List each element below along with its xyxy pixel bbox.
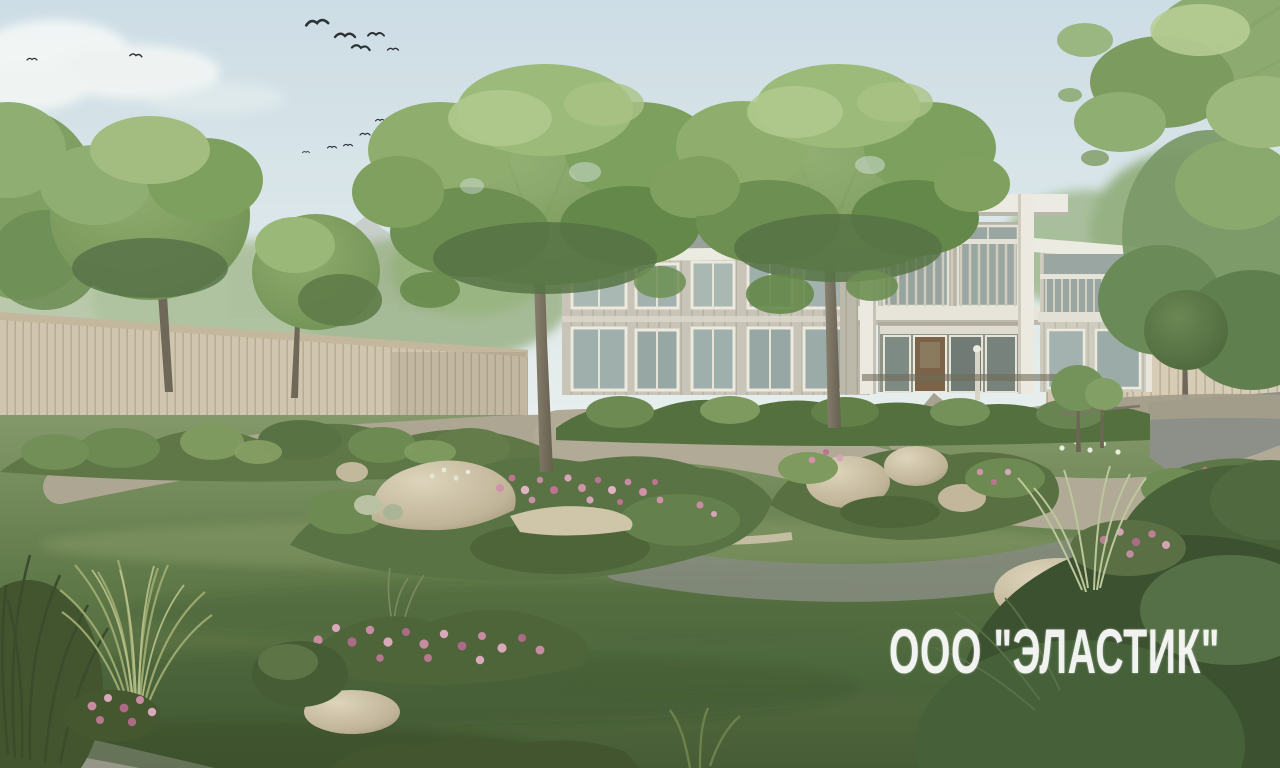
landscape-render: ООО "ЭЛАСТИК" (0, 0, 1280, 768)
company-watermark: ООО "ЭЛАСТИК" (889, 621, 1220, 684)
boulder (884, 446, 948, 486)
entrance (880, 334, 1020, 392)
topiary-ball (383, 504, 403, 520)
lower-windows (572, 328, 844, 390)
pink-flower-bush-right (1070, 520, 1186, 576)
timber-edge (862, 374, 1082, 381)
topiary-ball (354, 495, 382, 515)
pink-flowers-bottom-left (64, 690, 160, 742)
